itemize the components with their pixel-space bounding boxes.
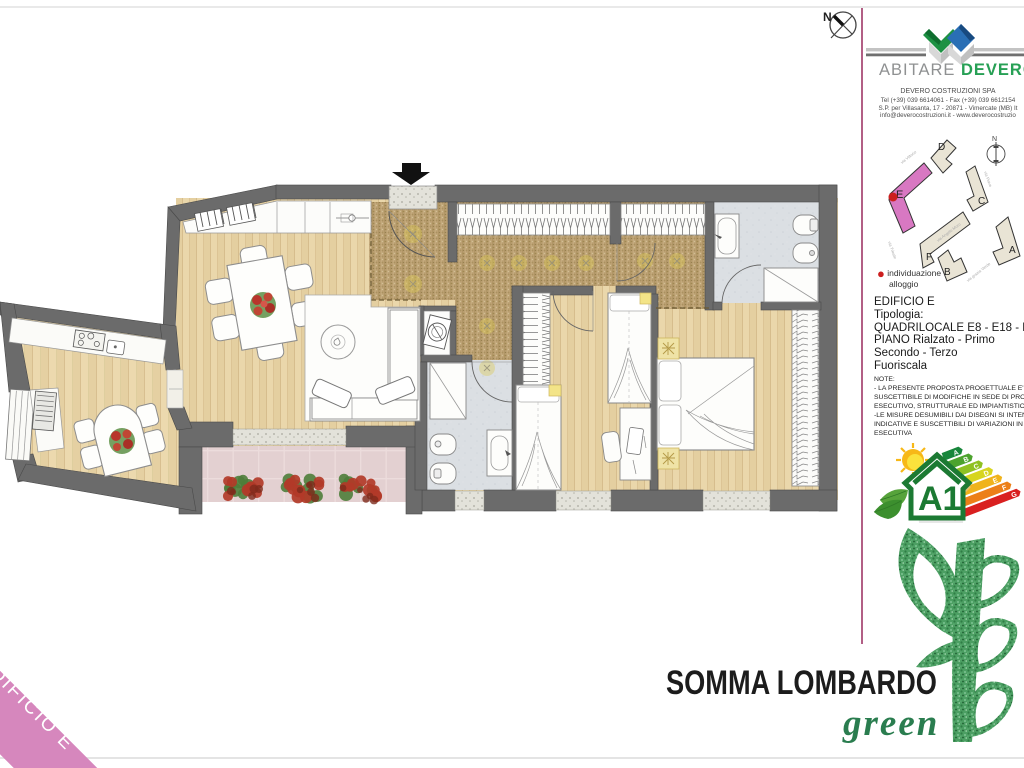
svg-text:F: F bbox=[926, 252, 932, 263]
svg-text:N: N bbox=[992, 136, 997, 143]
svg-text:C: C bbox=[978, 196, 985, 207]
svg-text:A1: A1 bbox=[918, 480, 961, 518]
svg-text:via Piave: via Piave bbox=[983, 171, 994, 189]
svg-text:B: B bbox=[944, 267, 951, 278]
svg-text:A: A bbox=[1009, 245, 1016, 256]
svg-text:via grazia Verde: via grazia Verde bbox=[966, 261, 992, 283]
svg-text:via Trieste: via Trieste bbox=[887, 241, 898, 261]
svg-text:via Vittorio: via Vittorio bbox=[900, 149, 918, 165]
svg-text:E: E bbox=[896, 189, 903, 201]
svg-text:D: D bbox=[938, 142, 945, 153]
